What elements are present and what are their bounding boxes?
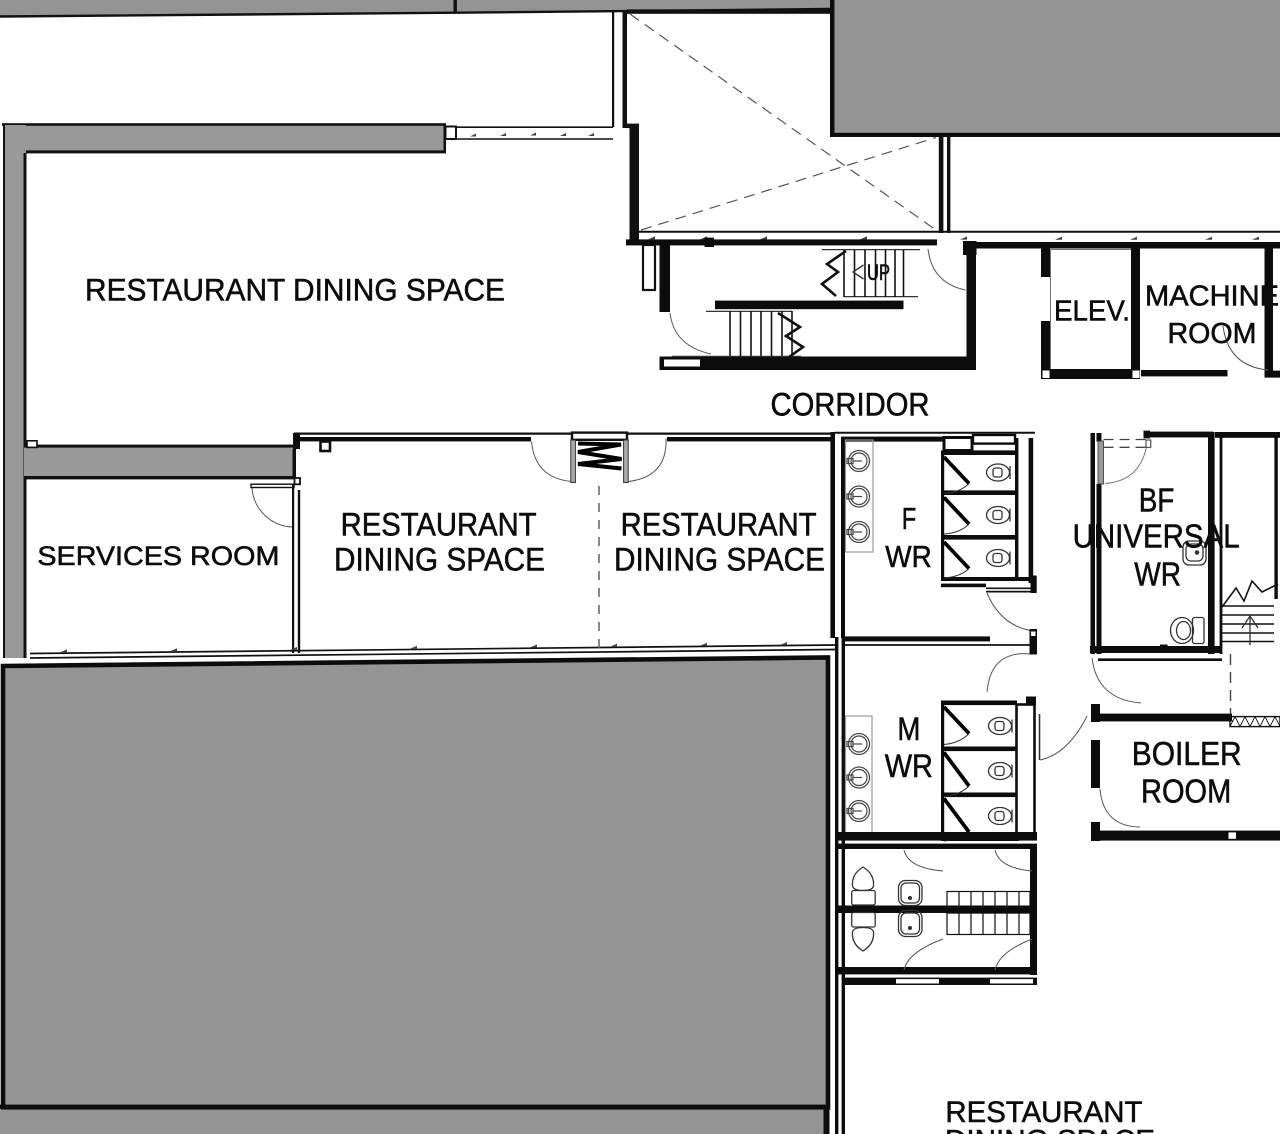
svg-text:UP: UP bbox=[867, 260, 890, 285]
svg-text:F: F bbox=[902, 501, 917, 536]
svg-text:SERVICES ROOM: SERVICES ROOM bbox=[37, 541, 279, 571]
svg-text:ROOM: ROOM bbox=[1141, 773, 1231, 810]
svg-text:WR: WR bbox=[885, 539, 932, 574]
svg-text:M: M bbox=[897, 711, 920, 747]
svg-text:UNIVERSAL: UNIVERSAL bbox=[1073, 518, 1240, 555]
svg-text:MACHINE: MACHINE bbox=[1145, 281, 1279, 313]
svg-text:BF: BF bbox=[1139, 481, 1175, 518]
svg-text:DINING SPACE: DINING SPACE bbox=[334, 541, 545, 577]
svg-text:ELEV.: ELEV. bbox=[1054, 296, 1130, 328]
svg-text:RESTAURANT DINING SPACE: RESTAURANT DINING SPACE bbox=[85, 272, 505, 308]
svg-text:DINING SPACE: DINING SPACE bbox=[945, 1125, 1155, 1134]
svg-text:BOILER: BOILER bbox=[1132, 736, 1242, 773]
svg-text:CORRIDOR: CORRIDOR bbox=[771, 386, 930, 422]
svg-text:WR: WR bbox=[885, 748, 933, 784]
svg-text:DINING SPACE: DINING SPACE bbox=[614, 541, 825, 577]
svg-text:ROOM: ROOM bbox=[1168, 318, 1257, 350]
svg-text:RESTAURANT: RESTAURANT bbox=[621, 507, 817, 543]
svg-text:RESTAURANT: RESTAURANT bbox=[341, 507, 537, 543]
svg-text:WR: WR bbox=[1134, 556, 1181, 593]
